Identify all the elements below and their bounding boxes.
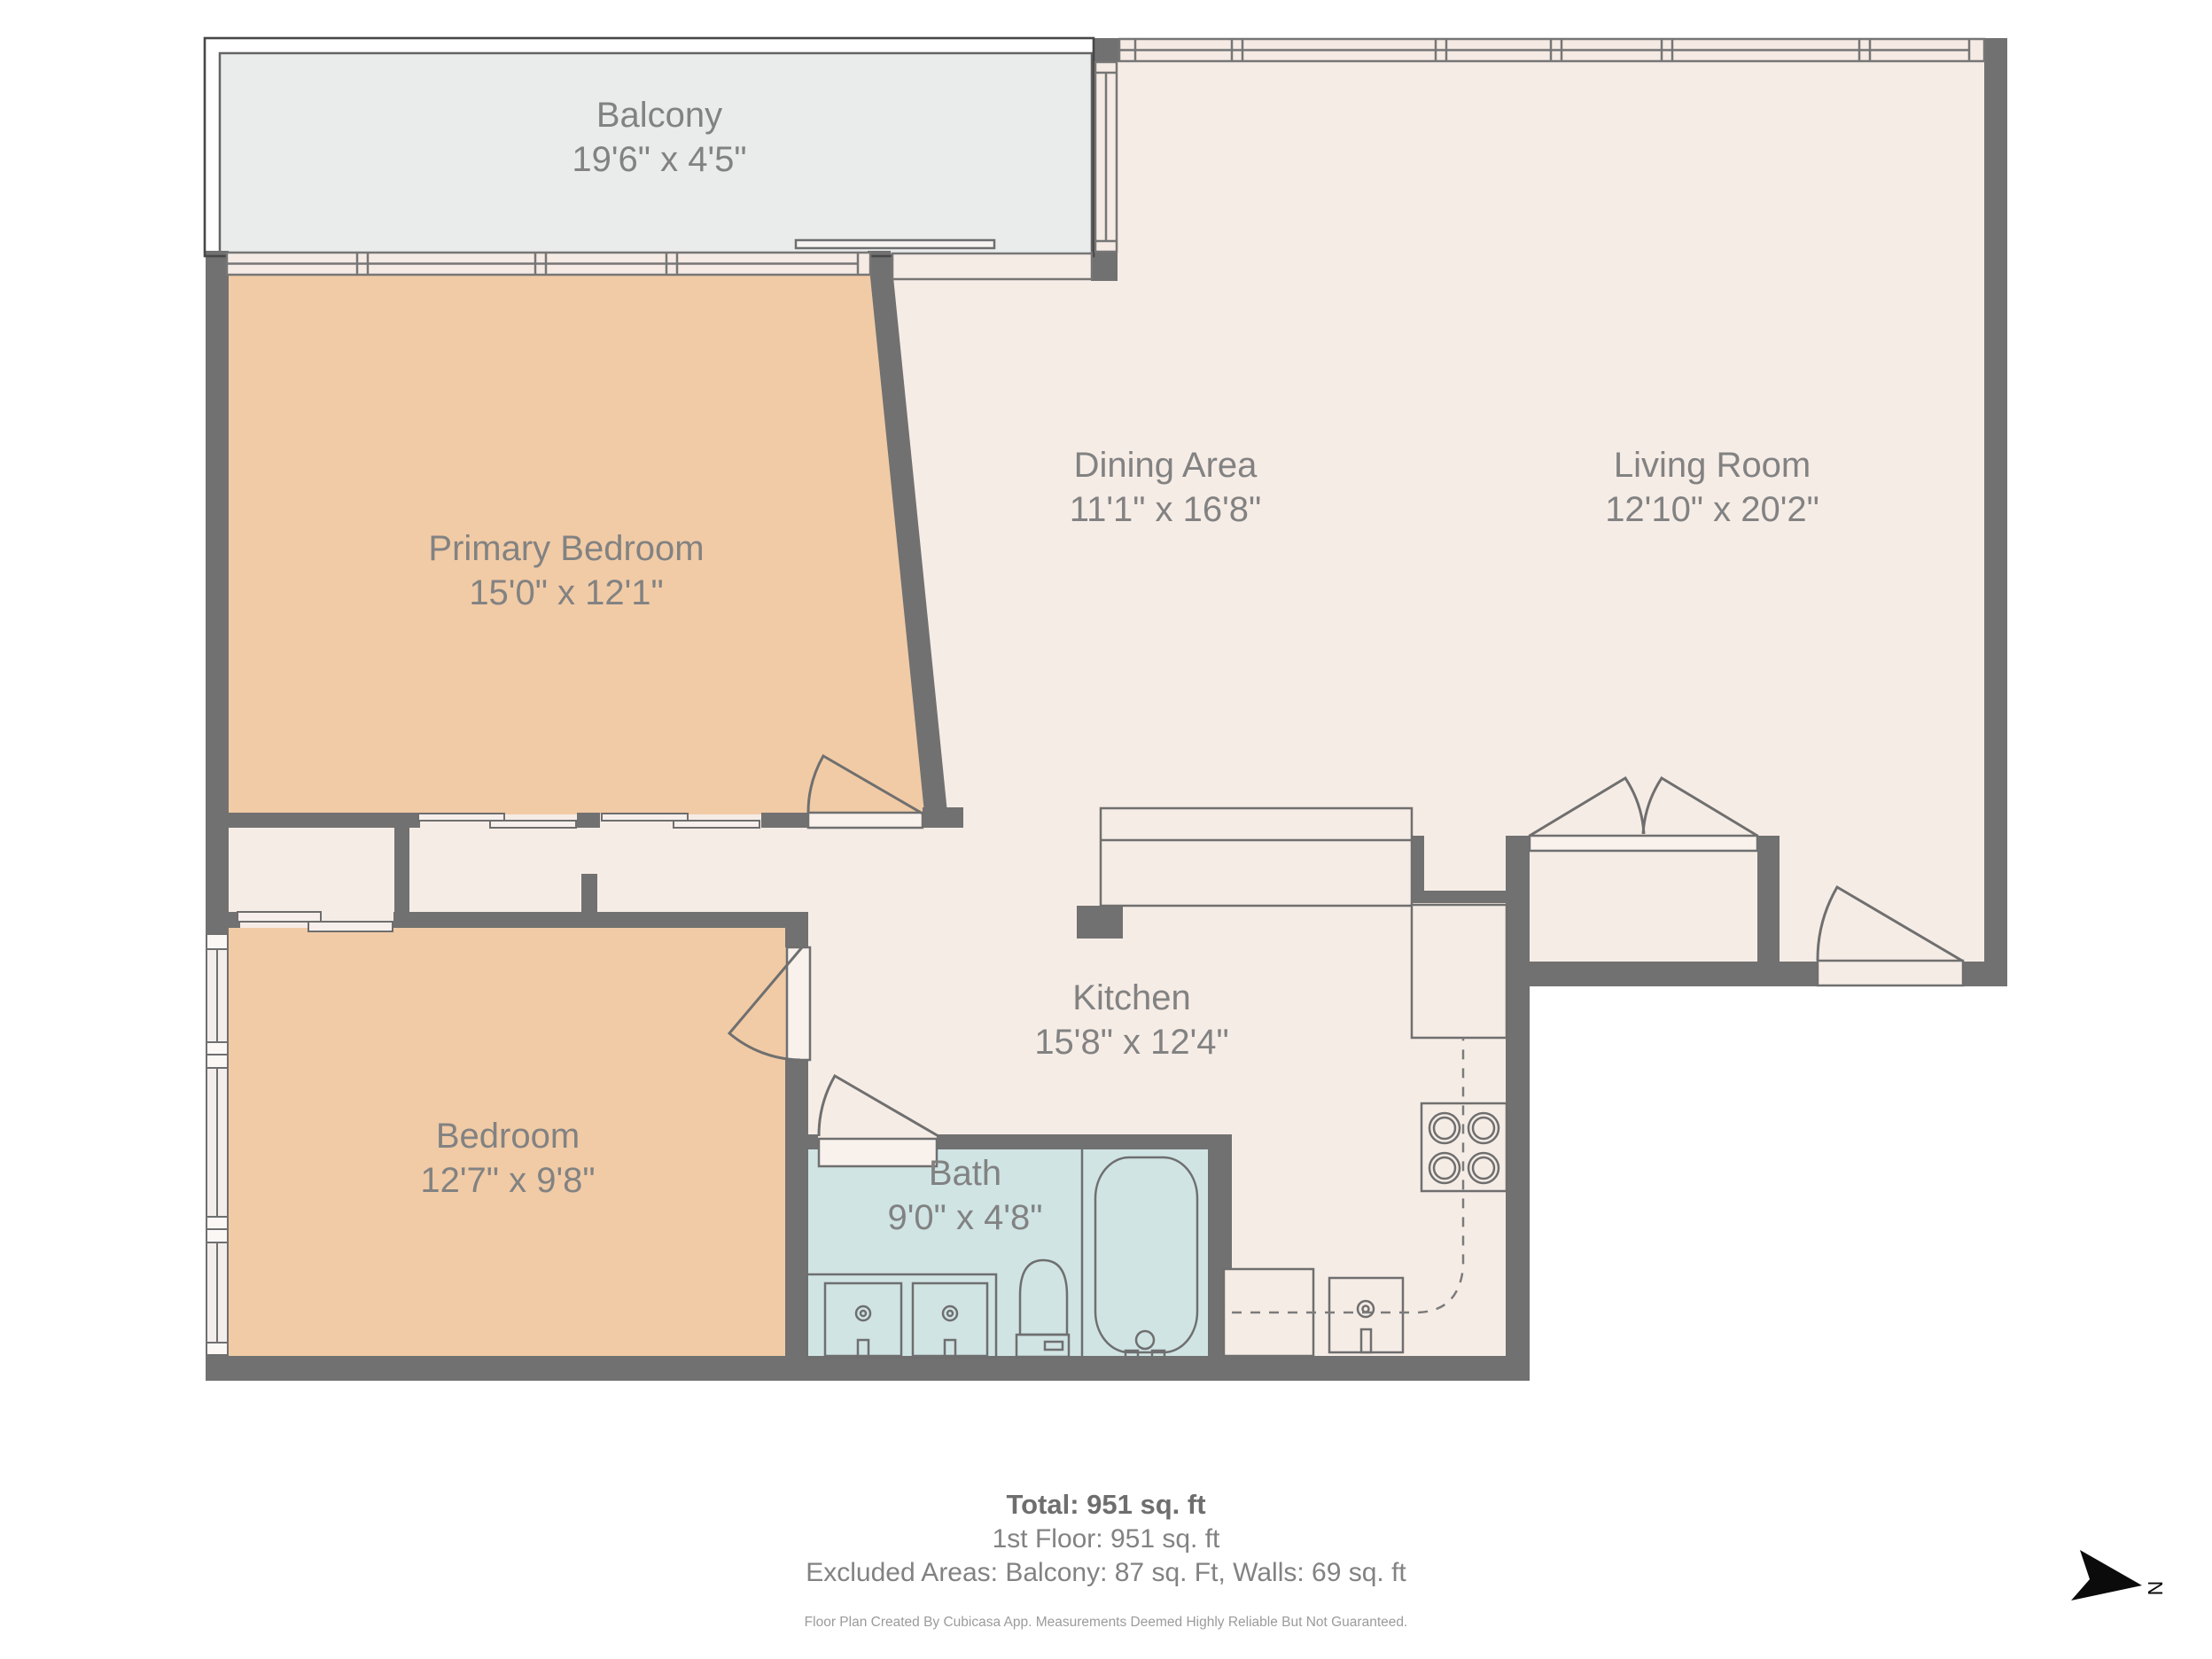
svg-text:Bath: Bath — [929, 1154, 1001, 1193]
svg-text:11'1" x 16'8": 11'1" x 16'8" — [1070, 490, 1261, 529]
svg-text:19'6" x 4'5": 19'6" x 4'5" — [572, 140, 746, 179]
svg-text:Total: 951 sq. ft: Total: 951 sq. ft — [1006, 1489, 1205, 1520]
svg-text:15'0" x 12'1": 15'0" x 12'1" — [469, 573, 663, 612]
svg-text:Primary Bedroom: Primary Bedroom — [428, 529, 704, 568]
svg-text:Excluded Areas: Balcony: 87 sq: Excluded Areas: Balcony: 87 sq. Ft, Wall… — [806, 1558, 1406, 1587]
svg-text:Living Room: Living Room — [1614, 446, 1811, 485]
svg-text:15'8" x 12'4": 15'8" x 12'4" — [1034, 1023, 1228, 1062]
svg-text:N: N — [2144, 1581, 2167, 1596]
svg-text:Balcony: Balcony — [596, 96, 722, 135]
svg-text:Kitchen: Kitchen — [1072, 978, 1190, 1017]
svg-text:12'10" x 20'2": 12'10" x 20'2" — [1605, 490, 1819, 529]
svg-text:Bedroom: Bedroom — [436, 1117, 580, 1156]
svg-text:12'7" x 9'8": 12'7" x 9'8" — [420, 1161, 595, 1200]
svg-text:Dining Area: Dining Area — [1074, 446, 1258, 485]
svg-text:1st Floor: 951 sq. ft: 1st Floor: 951 sq. ft — [993, 1524, 1220, 1554]
svg-text:9'0" x 4'8": 9'0" x 4'8" — [888, 1198, 1043, 1237]
svg-text:Floor Plan Created By Cubicasa: Floor Plan Created By Cubicasa App. Meas… — [805, 1615, 1408, 1630]
